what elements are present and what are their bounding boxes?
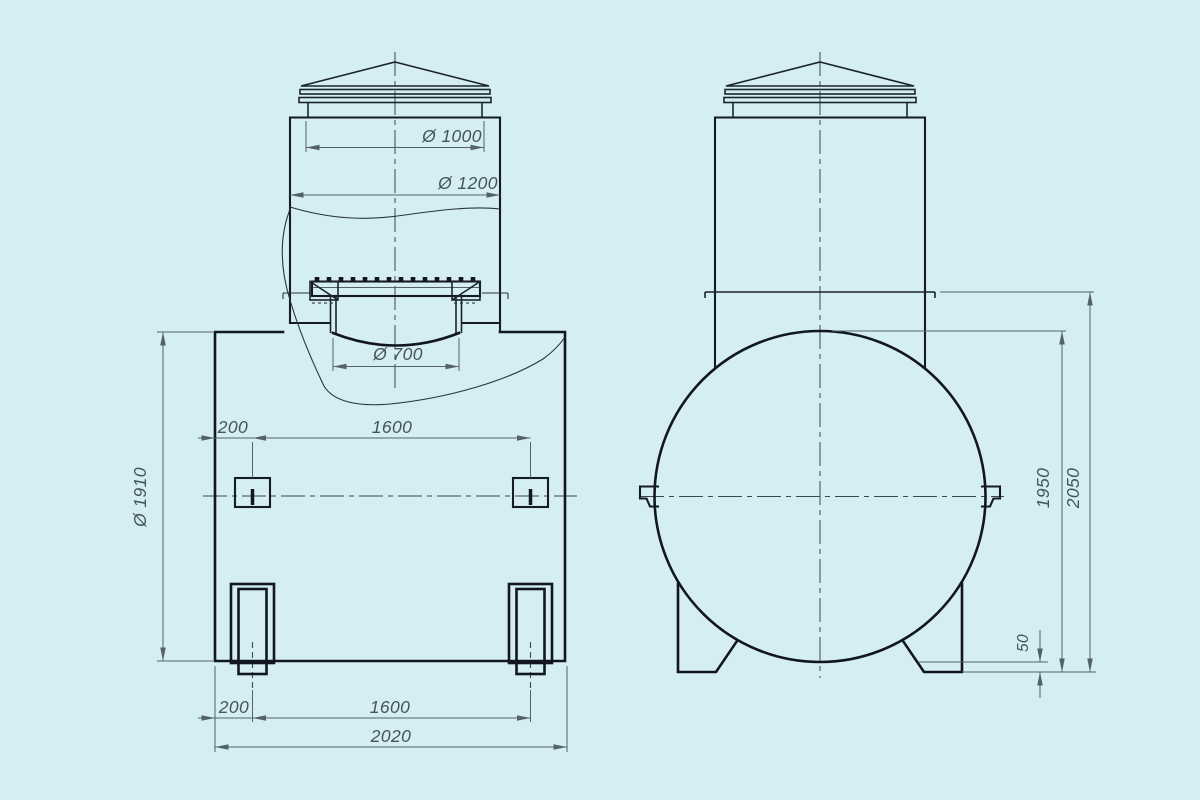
dim-label-lug-offset: 200 bbox=[217, 417, 248, 437]
dim-manhole: Ø 700 bbox=[333, 338, 459, 371]
dim-overall-length: 2020 bbox=[215, 726, 567, 750]
section-break-lines bbox=[282, 207, 565, 405]
dim-label-support-spacing: 1600 bbox=[370, 697, 411, 717]
lifting-lugs-side bbox=[235, 478, 548, 507]
dim-label-height-overall: 2050 bbox=[1063, 468, 1083, 510]
dim-tank-diameter: Ø 1910 bbox=[130, 332, 213, 661]
dim-label-tank-diameter: Ø 1910 bbox=[130, 467, 150, 528]
dim-label-ground-clearance: 50 bbox=[1015, 634, 1032, 652]
dim-label-support-offset: 200 bbox=[218, 697, 249, 717]
front-view: 1950 2050 50 bbox=[640, 52, 1096, 698]
manhole-neck-walls bbox=[331, 296, 462, 333]
tank-technical-drawing: Ø 1000 Ø 1200 Ø 700 Ø 1910 bbox=[0, 0, 1200, 800]
side-view: Ø 1000 Ø 1200 Ø 700 Ø 1910 bbox=[130, 52, 577, 752]
front-view-centerlines bbox=[640, 52, 1004, 678]
dim-height-shell: 1950 bbox=[832, 331, 1066, 672]
dim-label-height-shell: 1950 bbox=[1033, 468, 1053, 509]
dim-label-lug-spacing: 1600 bbox=[372, 417, 413, 437]
dim-lug-row: 200 1600 bbox=[198, 417, 531, 478]
dim-label-neck-outer: Ø 1200 bbox=[437, 173, 498, 193]
dim-label-manhole: Ø 700 bbox=[372, 344, 423, 364]
dim-ground-clearance: 50 bbox=[918, 630, 1096, 698]
dim-label-overall-length: 2020 bbox=[370, 726, 412, 746]
dim-label-neck-inner: Ø 1000 bbox=[421, 126, 482, 146]
drawing-sheet: Ø 1000 Ø 1200 Ø 700 Ø 1910 bbox=[0, 0, 1200, 800]
